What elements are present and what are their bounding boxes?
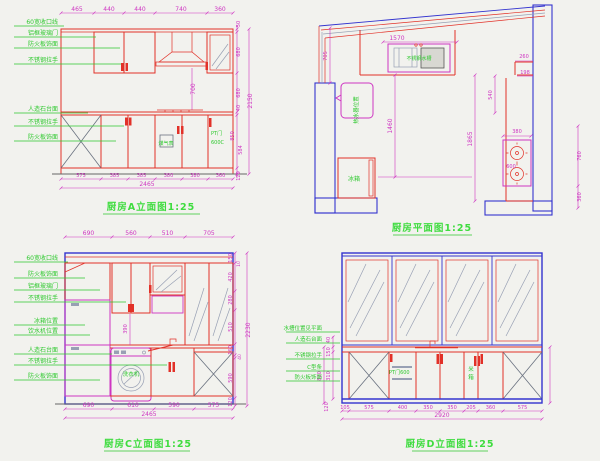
dim: 205 [466, 405, 476, 411]
dim: 1460 [387, 118, 394, 133]
elevation-c-labels: 60宽收口线 防火板饰面 铝框玻璃门 不锈钢拉手 冰箱位置 饮水机位置 人造石台… [14, 254, 167, 380]
annotation: 防火板饰面 [28, 372, 58, 380]
dim: 510 [228, 322, 234, 332]
elevation-c-right-dims: 150 10 420 280 510 160 40 590 120 2230 [228, 252, 252, 408]
dim-mid: 390 [123, 324, 129, 334]
plan-sink-counter: 不锈钢水槽 [360, 30, 455, 75]
panel-elevation-d: PT门600 米 箱 105 575 400 350 350 205 360 5… [300, 230, 600, 461]
dim: 105 [340, 405, 350, 411]
dim: 690 [83, 402, 95, 409]
dim: 575 [208, 402, 220, 409]
dim: 705 [203, 230, 215, 237]
dim: 420 [228, 272, 234, 282]
dim: 590 [168, 402, 180, 409]
dim: 310 [326, 371, 332, 381]
dim: 740 [175, 6, 187, 13]
elevation-a-labels: 60宽收口线 铝框玻璃门 防火板饰面 不锈钢拉手 人造石台面 不锈钢拉手 防火板… [14, 18, 124, 141]
annotation: 防火板饰面 [28, 270, 58, 278]
dim: 198 [520, 70, 530, 76]
heater-label: 热水器位置 [352, 96, 360, 124]
elevation-a-drawing: 700 煤气表 PT门 600C [52, 29, 247, 174]
annotation: 饮水机位置 [28, 327, 58, 335]
dim: 120 [324, 402, 330, 412]
dim: 560 [125, 230, 137, 237]
annotation: 人造石台面 [294, 335, 322, 343]
fridge-label: 冰箱 [348, 175, 360, 183]
dim: 260 [519, 54, 529, 60]
annotation: 不锈钢拉手 [28, 357, 58, 365]
dim: 40 [236, 105, 242, 111]
sink-label: 不锈钢水槽 [406, 55, 431, 62]
dim: 360 [577, 192, 583, 202]
dim: 160 [228, 345, 234, 355]
elevation-d-drawing: PT门600 米 箱 [342, 253, 542, 403]
annotation: 人造石台面 [28, 346, 58, 354]
dim: 575 [364, 405, 374, 411]
dim: 10 [236, 261, 242, 267]
dim-total-height: 2230 [245, 322, 252, 337]
annotation: 冰箱位置 [34, 317, 58, 325]
plan-fridge: 冰箱 [338, 158, 375, 198]
annotation: 防火板饰面 [294, 373, 322, 381]
washing-machine: 洗衣机 [111, 348, 151, 401]
dim: 760 [577, 151, 583, 161]
elevation-c-top-dims: 690 560 510 705 [64, 230, 235, 239]
plan-heater: 热水器位置 [336, 83, 373, 124]
elevation-a-bottom-dims: 575 385 385 380 380 360 2465 [60, 173, 235, 190]
panel-elevation-a: 700 煤气表 PT门 600C 465 440 440 740 360 575… [0, 0, 300, 230]
dim: 465 [71, 6, 83, 13]
burner-icon [507, 143, 528, 164]
annotation: 60宽收口线 [26, 254, 58, 262]
panel-plan-view: 不锈钢水槽 热水器位置 冰箱 1570 705 1460 [300, 0, 600, 240]
dim: 440 [103, 6, 115, 13]
dim: 385 [110, 173, 120, 179]
dim: 150 [326, 347, 332, 357]
dim: 680 [236, 47, 242, 57]
annotation: 不锈钢拉手 [294, 351, 322, 359]
dim: 510 [162, 230, 174, 237]
dim: 575 [518, 405, 528, 411]
annotation: 铝框玻璃门 [28, 282, 58, 290]
annotation: 人造石台面 [28, 105, 58, 113]
annotation: 不锈钢拉手 [28, 294, 58, 302]
dim: 400 [398, 405, 408, 411]
pt-note-line1: PT门 [211, 130, 222, 137]
dim: 350 [447, 405, 457, 411]
dim: 350 [423, 405, 433, 411]
dim: 360 [486, 405, 496, 411]
annotation: 防火板饰面 [28, 133, 58, 141]
pt-note-line2: 600C [211, 140, 225, 146]
dim: 40 [237, 354, 243, 360]
caption-elevation-a: 厨房A立面图1:25 [107, 201, 195, 213]
dim: 440 [134, 6, 146, 13]
dim: 1865 [467, 131, 474, 146]
annotation: 防火板饰面 [28, 40, 58, 48]
dim: 584 [238, 145, 244, 155]
dim: 50 [236, 21, 242, 27]
elevation-d-bottom-dims: 105 575 400 350 350 205 360 575 2920 [340, 405, 543, 421]
rice-box-label: 箱 [468, 373, 474, 381]
dim: 40 [326, 337, 332, 343]
dim: 610 [127, 402, 139, 409]
annotation: 铝框玻璃门 [28, 29, 58, 37]
pt-note: PT门600 [389, 369, 410, 376]
caption-elevation-d: 厨房D立面图1:25 [405, 438, 494, 450]
annotation: 60宽收口线 [26, 18, 58, 26]
dim: 1570 [389, 35, 404, 42]
dim: 120 [228, 397, 234, 407]
annotation: 不锈钢拉手 [28, 56, 58, 64]
dim-total-width: 2465 [139, 181, 154, 188]
annotation: 不锈钢拉手 [28, 118, 58, 126]
dim: 590 [228, 373, 234, 383]
cad-sheet-kitchen-drawings: 700 煤气表 PT门 600C 465 440 440 740 360 575… [0, 0, 600, 461]
dim-total-height: 2150 [247, 93, 254, 108]
dim: 575 [76, 173, 86, 179]
panel-elevation-c: 洗衣机 390 690 560 510 705 690 610 590 575 … [0, 230, 300, 461]
dim: 540 [488, 90, 494, 100]
dim: 380 [164, 173, 174, 179]
annotation: 水槽位置见平面 [283, 324, 322, 332]
dim: 680 [236, 88, 242, 98]
dim-total-width: 2920 [434, 412, 449, 419]
rice-box-label: 米 [468, 365, 474, 373]
dim: 150 [228, 253, 234, 263]
dim-hood-height: 700 [190, 83, 197, 95]
dim: 380 [190, 173, 200, 179]
dim: 280 [228, 295, 234, 305]
plan-walls [315, 5, 552, 215]
caption-elevation-c: 厨房C立面图1:25 [104, 438, 192, 450]
dim: 360 [216, 173, 226, 179]
dim: 385 [137, 173, 147, 179]
gas-meter-label: 煤气表 [158, 140, 173, 147]
washer-label: 洗衣机 [123, 370, 140, 378]
dim: 850 [230, 131, 236, 141]
elevation-c-drawing: 洗衣机 390 [55, 253, 246, 404]
dim-total-width: 2465 [141, 411, 156, 418]
annotation: C型条 [307, 363, 322, 371]
dim: 380 [512, 129, 522, 135]
dim: 690 [83, 230, 95, 237]
elevation-a-right-dims: 50 680 680 40 850 584 120 2150 [230, 21, 254, 181]
dim: 360 [214, 6, 226, 13]
dim: 600 [506, 164, 516, 170]
dim: 120 [236, 171, 242, 181]
dim: 705 [323, 51, 329, 61]
elevation-a-top-dims: 465 440 440 740 360 [60, 6, 235, 15]
